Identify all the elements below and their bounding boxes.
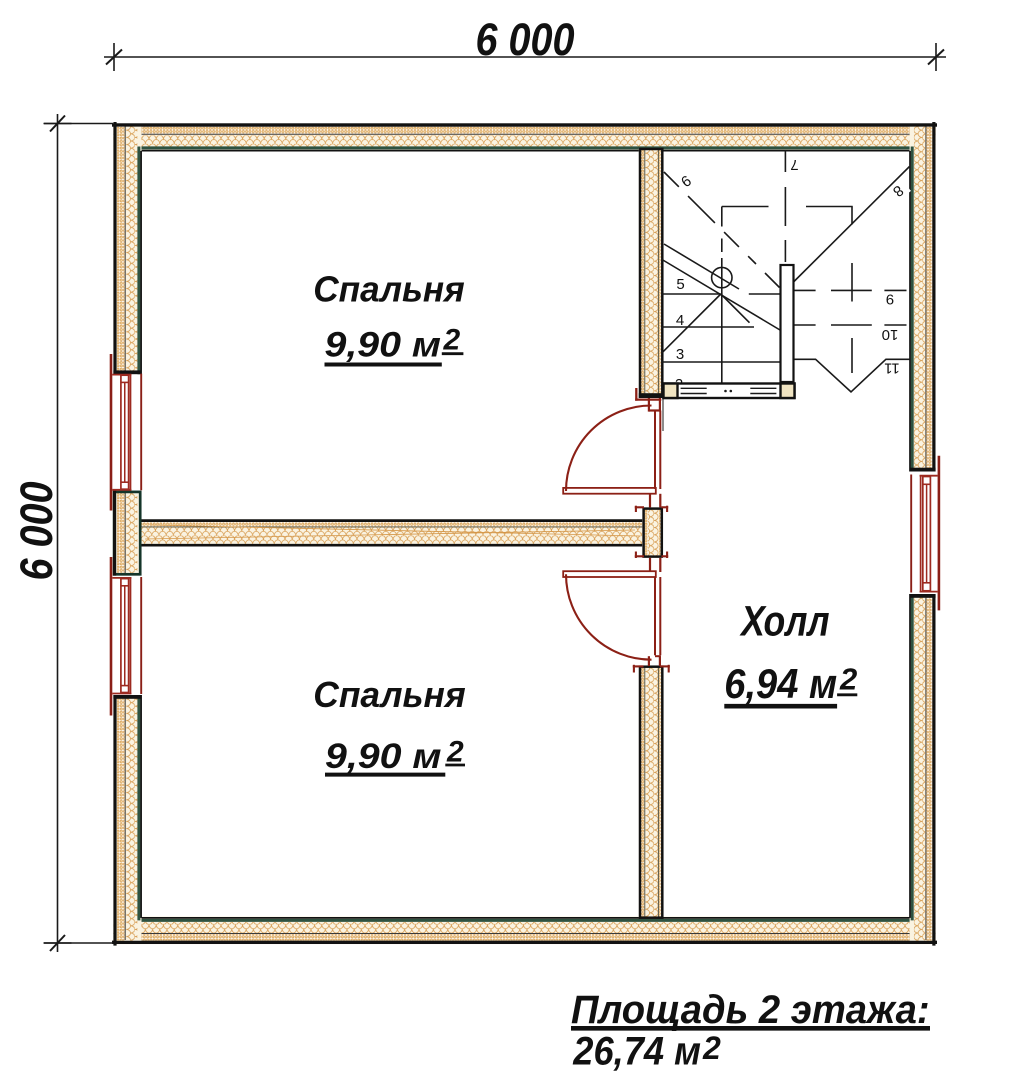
svg-text:5: 5: [676, 276, 684, 293]
svg-text:6 000: 6 000: [476, 14, 575, 65]
svg-text:10: 10: [882, 326, 899, 343]
svg-text:Холл: Холл: [739, 598, 829, 646]
svg-text:9: 9: [886, 291, 894, 308]
svg-text:11: 11: [884, 360, 900, 377]
svg-text:4: 4: [676, 312, 684, 329]
svg-text:2: 2: [702, 1030, 721, 1066]
svg-text:2: 2: [443, 324, 461, 357]
svg-text:Площадь 2 этажа:: Площадь 2 этажа:: [571, 988, 930, 1032]
svg-text:3: 3: [676, 346, 684, 363]
svg-text:2: 2: [446, 736, 464, 769]
svg-text:6,94 м: 6,94 м: [724, 660, 837, 707]
svg-text:Спальня: Спальня: [313, 674, 465, 715]
svg-text:Спальня: Спальня: [313, 268, 465, 309]
svg-text:9,90 м: 9,90 м: [325, 325, 442, 364]
svg-text:6 000: 6 000: [11, 482, 62, 581]
svg-text:7: 7: [790, 156, 798, 173]
svg-text:2: 2: [839, 661, 857, 696]
svg-text:26,74 м: 26,74 м: [572, 1030, 701, 1074]
svg-text:9,90 м: 9,90 м: [325, 737, 442, 776]
